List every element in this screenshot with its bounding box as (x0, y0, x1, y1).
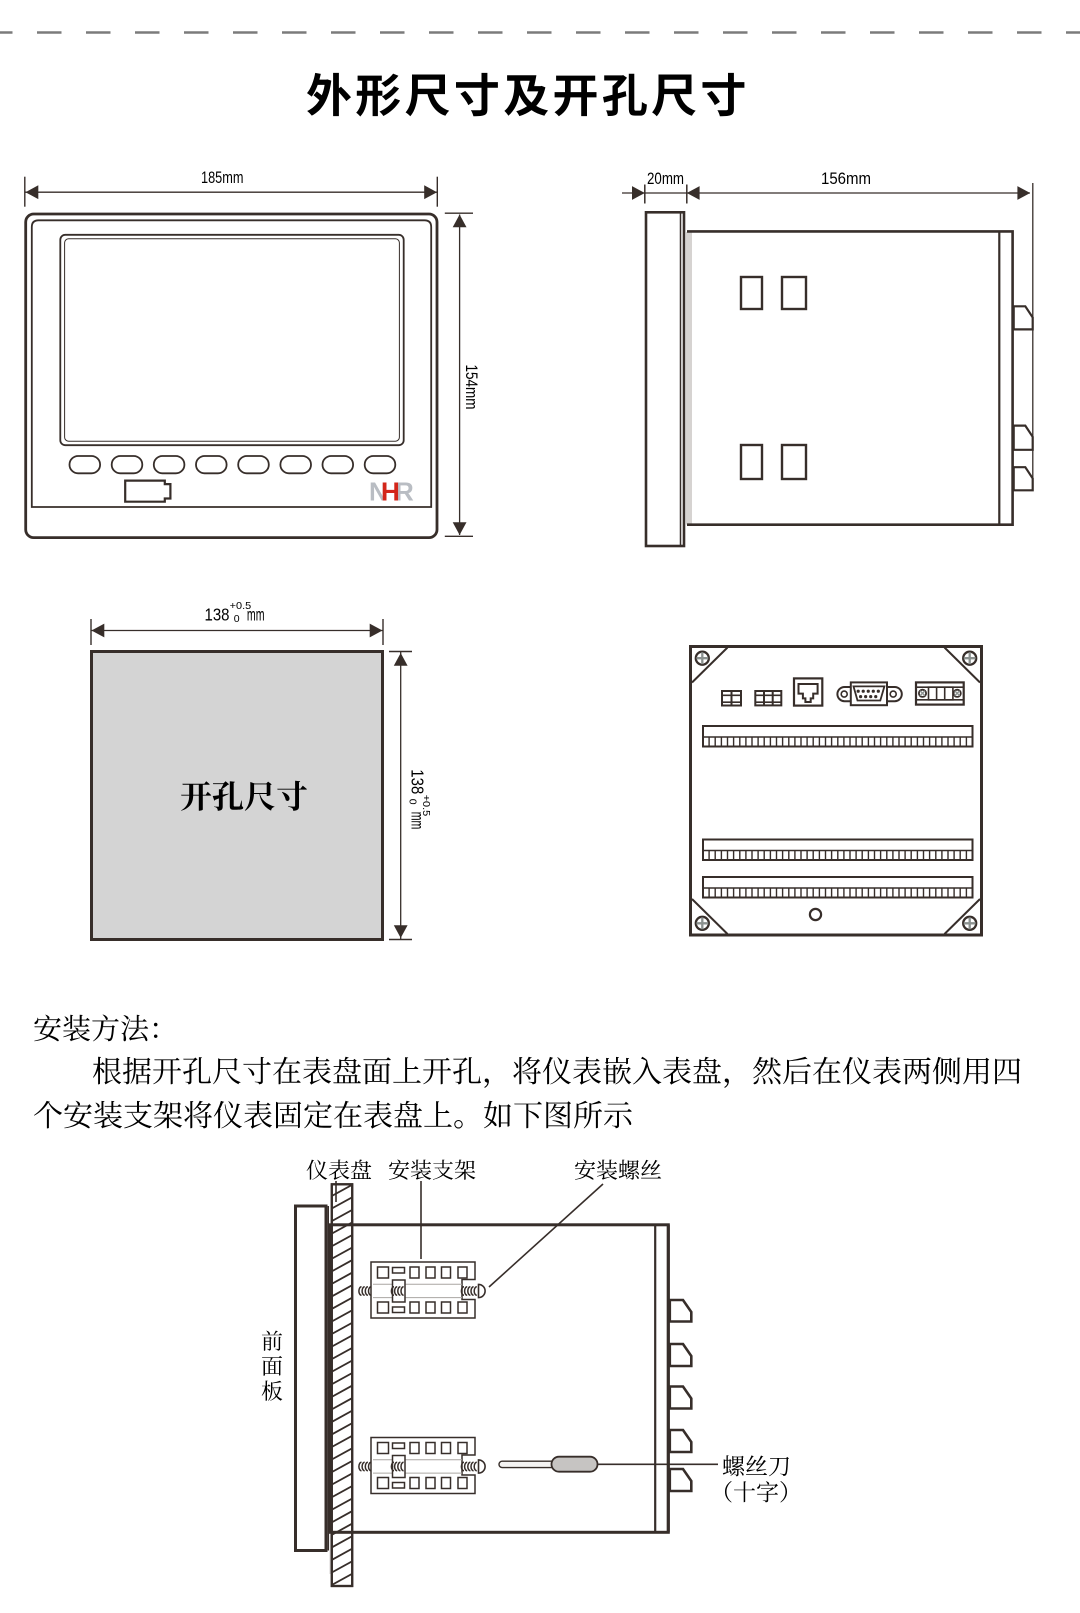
svg-text:138: 138 (407, 769, 427, 794)
svg-text:mm: mm (247, 605, 265, 625)
svg-text:185mm: 185mm (201, 168, 244, 187)
svg-text:156mm: 156mm (821, 169, 871, 188)
svg-text:0: 0 (407, 799, 419, 805)
svg-text:154mm: 154mm (462, 365, 481, 410)
svg-text:0: 0 (234, 613, 240, 625)
svg-text:138: 138 (205, 605, 230, 625)
svg-text:20mm: 20mm (647, 169, 684, 188)
svg-text:H: H (381, 477, 400, 507)
svg-text:mm: mm (407, 812, 427, 830)
